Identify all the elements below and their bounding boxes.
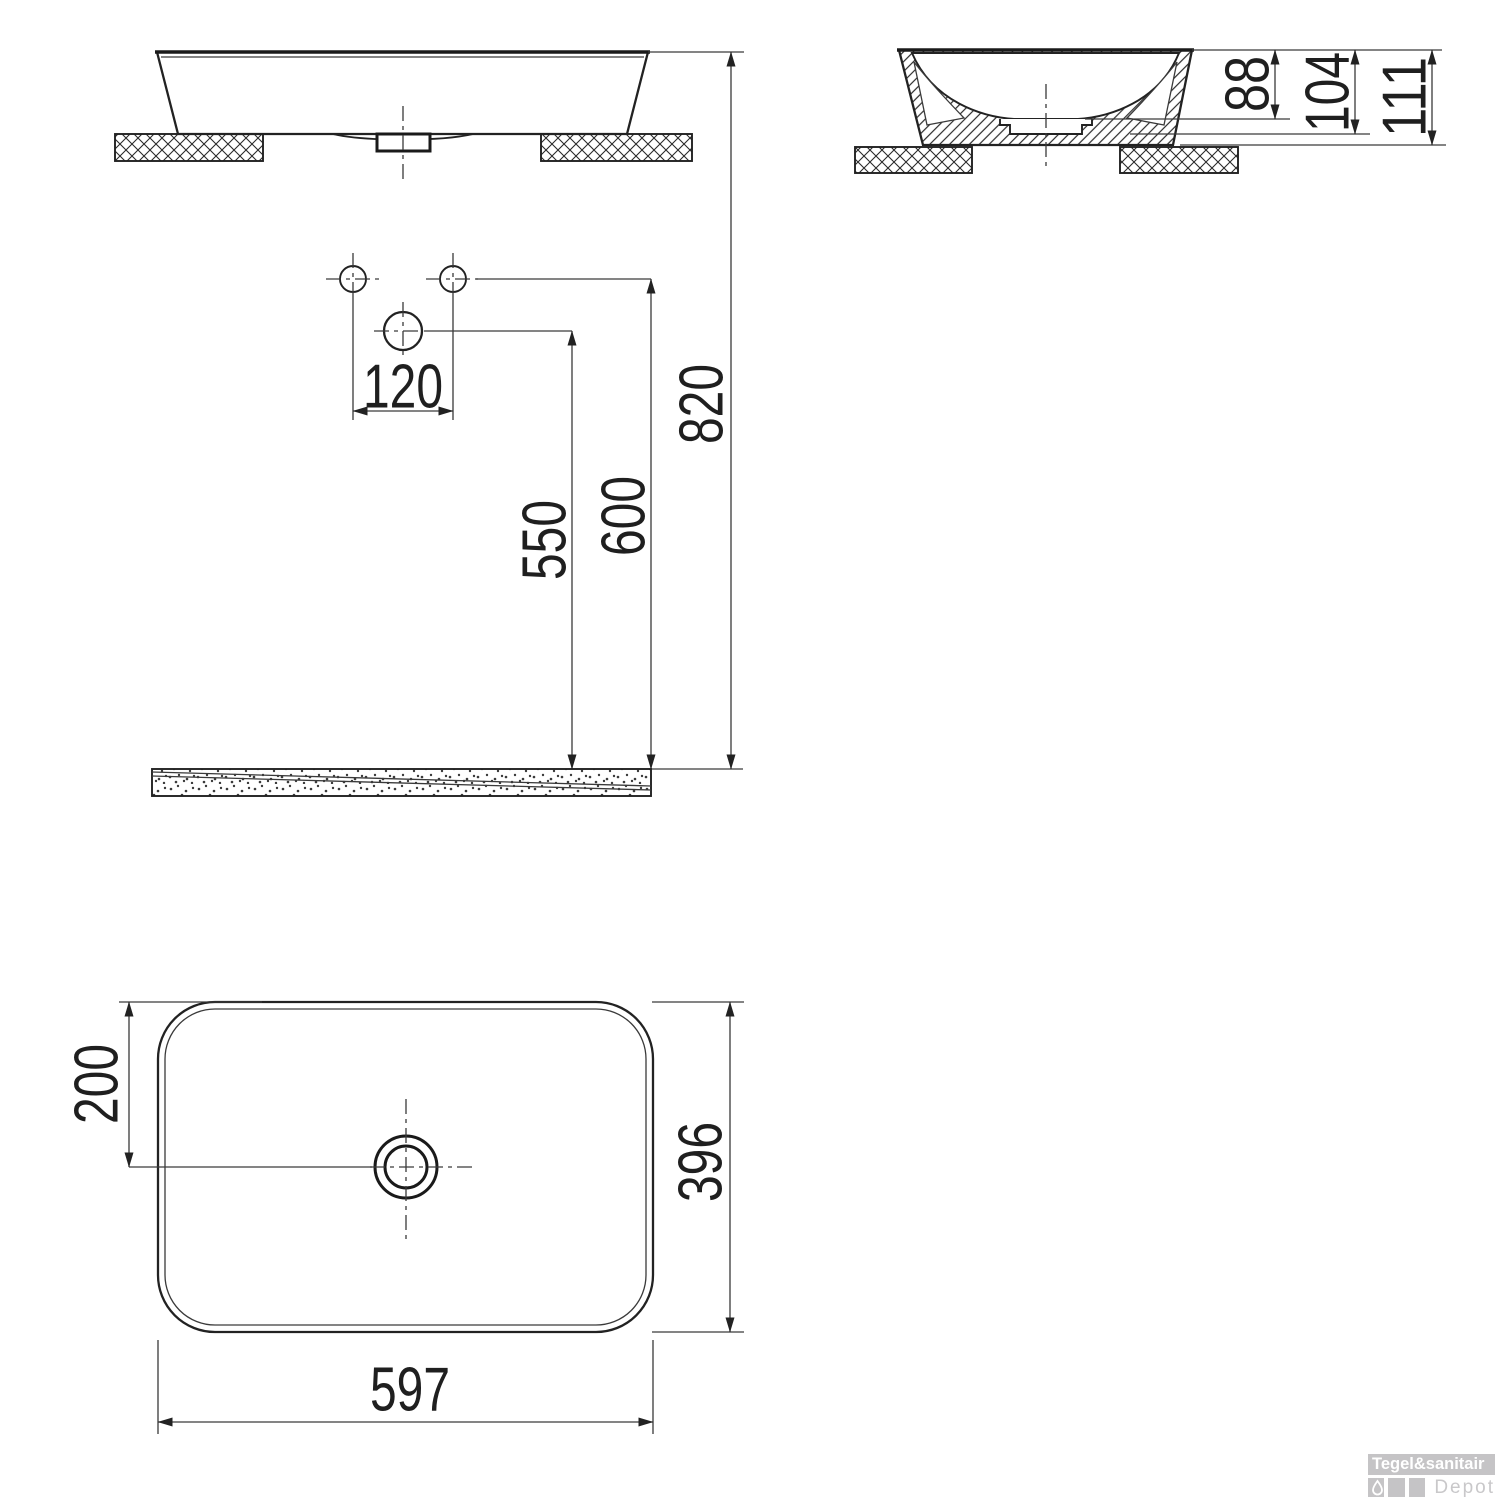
dimension-597: 597 — [158, 1356, 653, 1425]
logo-tile — [1388, 1478, 1404, 1497]
counter-shelf — [152, 769, 651, 796]
dimension-label-111: 111 — [1371, 57, 1440, 137]
logo-brand-text: Tegel&sanitair — [1372, 1455, 1484, 1473]
dimension-104: 104 — [1294, 50, 1363, 134]
logo-tile — [1409, 1478, 1425, 1497]
side-section-view: 88 104 111 — [855, 50, 1446, 173]
countertop-section-left-side — [855, 147, 972, 173]
dimension-label-88: 88 — [1214, 56, 1283, 112]
logo-tile-drop — [1368, 1478, 1384, 1497]
dimension-600: 600 — [590, 279, 659, 769]
dimension-label-104: 104 — [1294, 52, 1363, 132]
dimension-88: 88 — [1214, 50, 1283, 119]
water-drop-icon — [1368, 1478, 1387, 1497]
logo-tile-row: Depot — [1368, 1478, 1495, 1497]
dimension-label-120: 120 — [363, 353, 443, 422]
tap-hole-centerlines — [326, 253, 478, 360]
logo: Tegel&sanitair Depot — [1368, 1454, 1495, 1497]
dimension-label-597: 597 — [370, 1356, 450, 1425]
dimension-label-600: 600 — [590, 476, 659, 556]
technical-drawing-page: 88 104 111 120 550 600 820 — [0, 0, 1500, 1500]
dimension-label-820: 820 — [668, 364, 737, 444]
dimension-396: 396 — [667, 1002, 736, 1332]
dimension-label-550: 550 — [511, 500, 580, 580]
countertop-section-left — [115, 134, 263, 161]
dimension-200: 200 — [63, 1002, 132, 1167]
dimension-120: 120 — [353, 353, 453, 422]
logo-depot-text: Depot — [1434, 1478, 1495, 1497]
countertop-section-right-side — [1120, 147, 1238, 173]
dimension-label-200: 200 — [63, 1044, 132, 1124]
dimension-550: 550 — [511, 331, 580, 769]
front-view — [115, 52, 744, 179]
countertop-section-right — [541, 134, 692, 161]
basin-dimension-drawing: 88 104 111 120 550 600 820 — [0, 0, 1500, 1500]
plan-view: 200 396 597 — [63, 1002, 745, 1434]
logo-brand-bar: Tegel&sanitair — [1368, 1454, 1495, 1475]
basin-outline-front — [157, 52, 648, 134]
dimension-label-396: 396 — [667, 1122, 736, 1202]
dimension-111: 111 — [1371, 50, 1440, 145]
